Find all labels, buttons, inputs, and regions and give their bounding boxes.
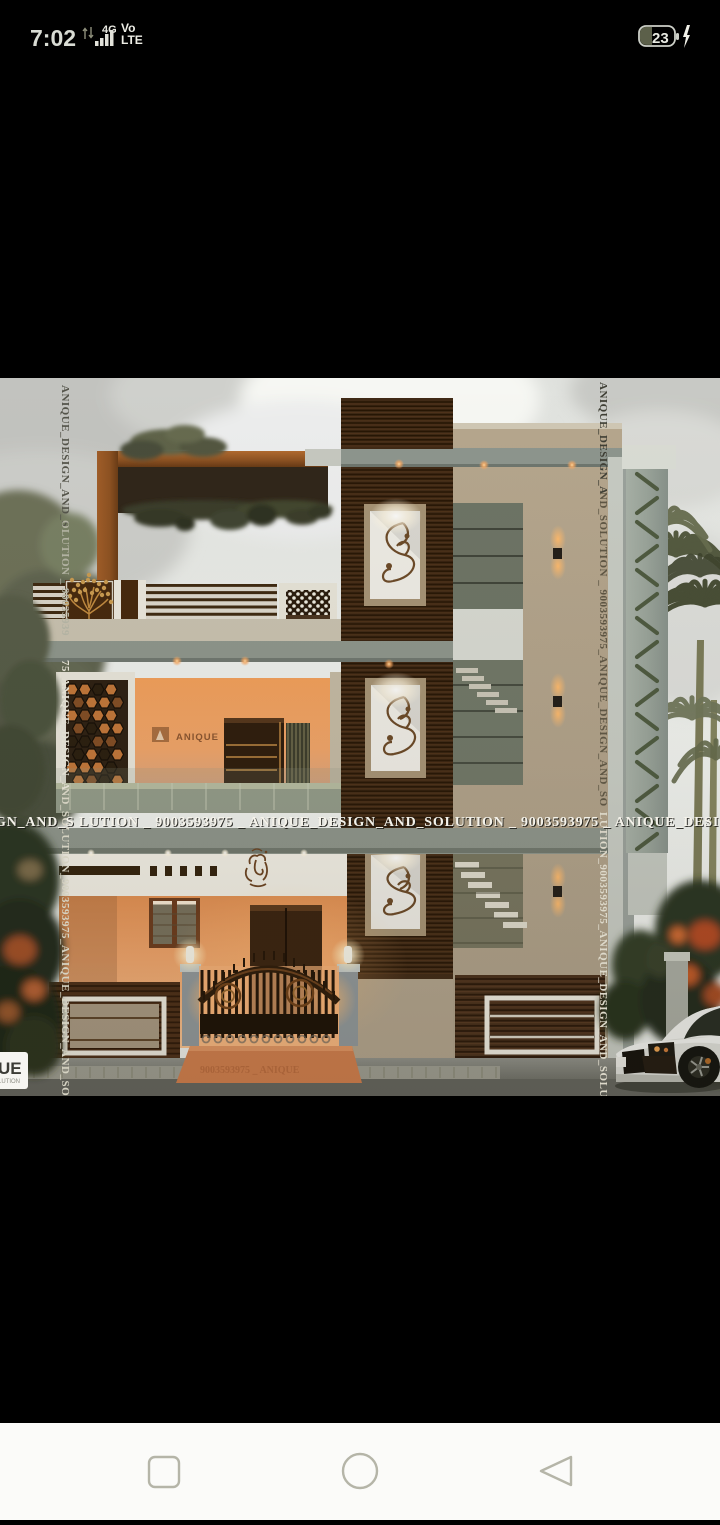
svg-text:GN_AND_S LUTION _ 9003593975: GN_AND_S LUTION _ 9003593975 _ ANIQUE_DE… <box>0 815 720 830</box>
svg-text:ANIQUE_DESIGN_A: ANIQUE_DESIGN_A <box>597 382 609 495</box>
svg-text:UE: UE <box>0 1059 22 1078</box>
svg-text:ND_SOLUTION _ 9003593975_ANIQU: ND_SOLUTION _ 9003593975_ANIQUE_DESIGN_A… <box>597 492 609 807</box>
svg-text:ANIQUE_DESIGN_AND_S: ANIQUE_DESIGN_AND_S <box>59 385 71 527</box>
svg-text:23: 23 <box>652 30 669 47</box>
svg-text:OLUTION _ 90035939: OLUTION _ 90035939 <box>59 520 71 636</box>
svg-text:75_ANIQUE_DESIGN_A: 75_ANIQUE_DESIGN_A <box>59 660 71 791</box>
svg-text:ND_SOLUTION_9003593975_ANIQUE_: ND_SOLUTION_9003593975_ANIQUE_DESIGN_AND… <box>59 788 71 1096</box>
svg-text:LUTION_9003593975_ANIQUE_DESIG: LUTION_9003593975_ANIQUE_DESIGN_AND_SOLU… <box>597 812 609 1096</box>
svg-text:LUTION: LUTION <box>0 1079 20 1085</box>
